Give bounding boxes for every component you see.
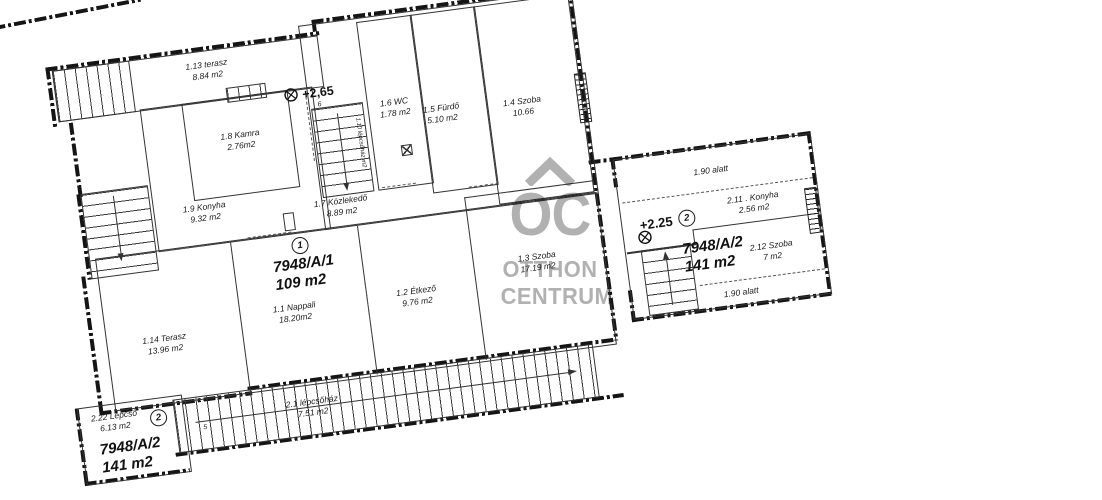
boiler-fixture bbox=[283, 212, 296, 231]
stairs-left-outdoor bbox=[80, 185, 159, 279]
stair-number: 5 bbox=[203, 424, 208, 431]
level-note: 6 bbox=[317, 101, 322, 108]
level-marker-icon bbox=[283, 87, 299, 108]
stair-arrow-up bbox=[662, 251, 669, 260]
stair-arrow-right bbox=[568, 368, 578, 375]
room-area: m2 bbox=[360, 159, 367, 168]
stairs-terrace-top bbox=[52, 61, 136, 123]
stair-arrow-down bbox=[343, 182, 350, 191]
stair-arrow-down bbox=[118, 253, 125, 262]
room-label-wc-16: 1.6 WC 1.78 m2 bbox=[378, 95, 411, 121]
wc-fixture-icon bbox=[401, 144, 413, 156]
level-marker-icon bbox=[637, 229, 653, 250]
room-area: 10.66 bbox=[512, 105, 534, 118]
wall bbox=[69, 123, 83, 201]
floor-plan: 1.13 terasz 8.84 m2 1.8 Kamra 2.76m2 1.9… bbox=[10, 0, 896, 500]
floor-plan-canvas: 1.13 terasz 8.84 m2 1.8 Kamra 2.76m2 1.9… bbox=[0, 0, 1102, 500]
room-area: 7 m2 bbox=[763, 250, 783, 262]
